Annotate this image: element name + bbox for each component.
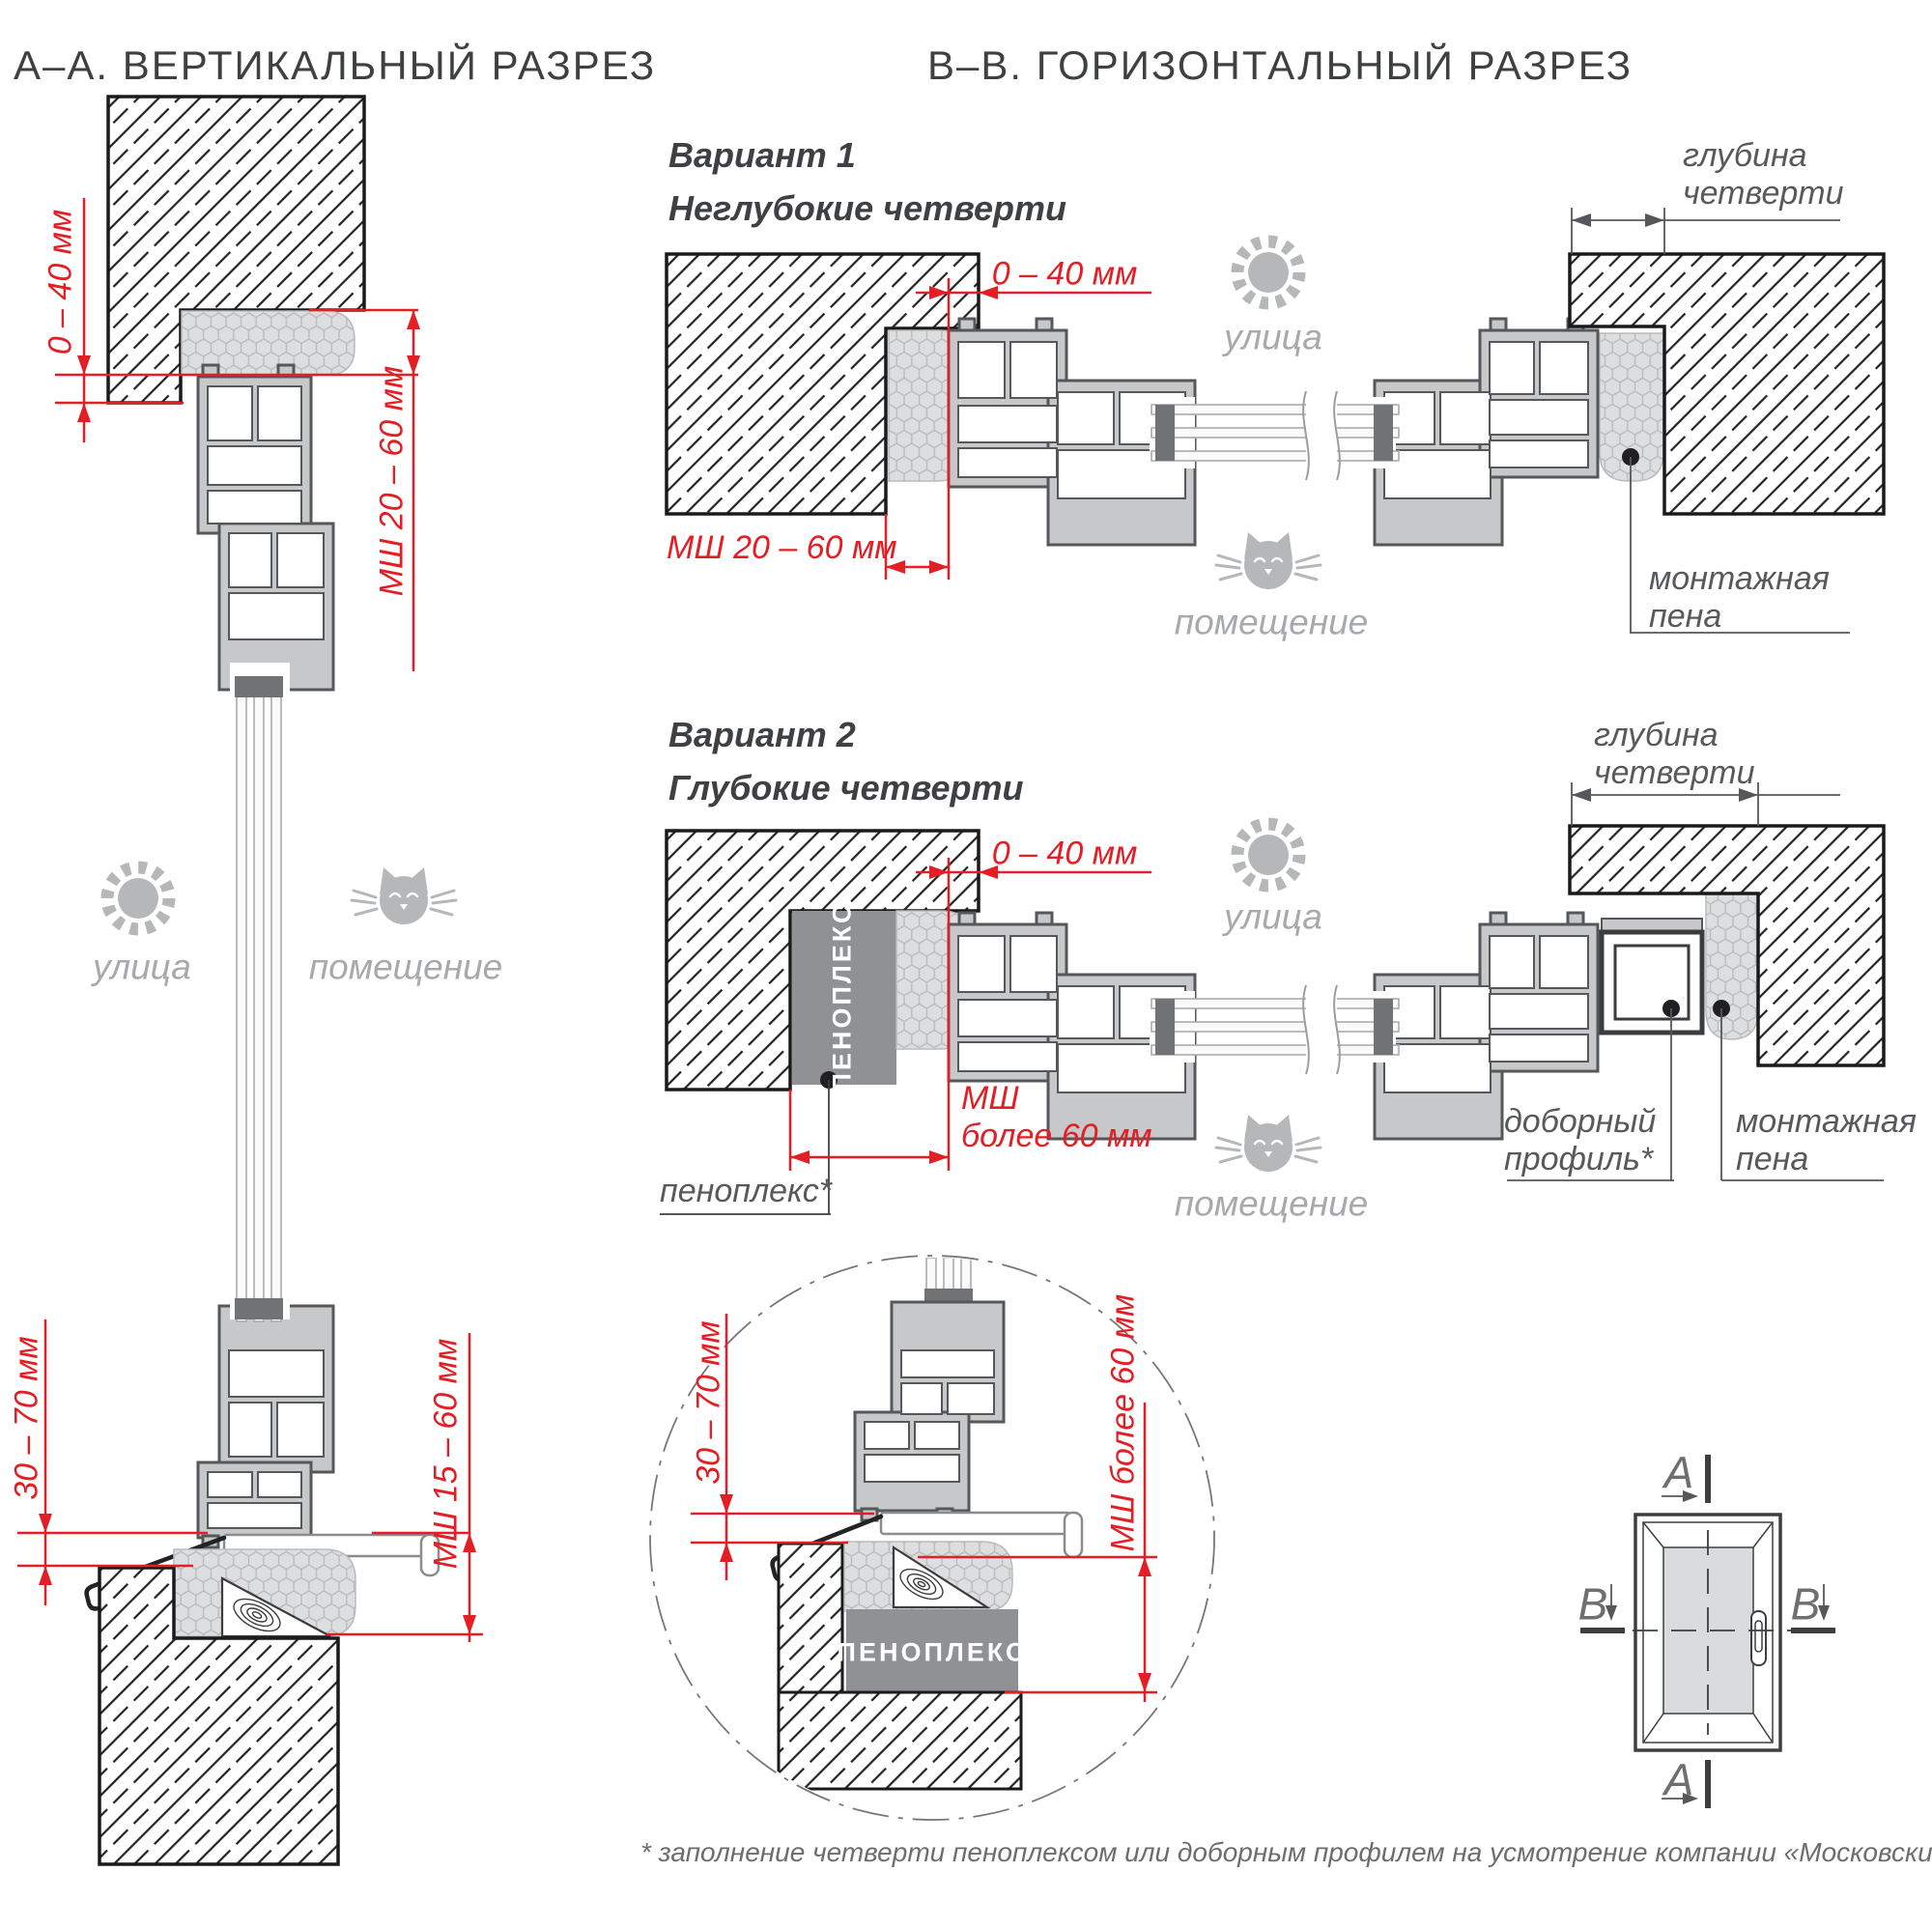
key-plan-mark-b-right: B [1791, 1579, 1821, 1630]
dim-label-bottom-seam: МШ 15 – 60 мм [427, 1339, 465, 1570]
key-plan-mark-a-bottom: A [1664, 1755, 1694, 1806]
detail-penoplex-label: ПЕНОПЛЕКС [838, 1637, 1028, 1667]
street-label: улица [1224, 318, 1322, 359]
quarter-depth-dim [1572, 208, 1840, 254]
cat-icon [352, 867, 456, 924]
detail-dim-offset: 30 – 70 мм [690, 1320, 727, 1485]
variant1-quarter-depth-label: глубина четверти [1683, 137, 1844, 213]
room-label: помещение [1175, 1184, 1368, 1226]
key-plan-mark-b-left: B [1578, 1579, 1608, 1630]
wall-bottom [779, 1692, 1021, 1789]
triple-glazing [237, 678, 281, 1321]
dim-label-bottom-offset: 30 – 70 мм [8, 1336, 45, 1500]
extension-profile [1602, 919, 1702, 1033]
variant1-title: Вариант 1 [668, 135, 856, 175]
section-b-title: B–B. ГОРИЗОНТАЛЬНЫЙ РАЗРЕЗ [927, 43, 1633, 89]
detail-dim-seam: МШ более 60 мм [1104, 1294, 1142, 1552]
variant1-subtitle: Неглубокие четверти [668, 188, 1066, 228]
section-a-title: А–А. ВЕРТИКАЛЬНЫЙ РАЗРЕЗ [14, 43, 656, 89]
room-label: помещение [309, 948, 502, 989]
extension-profile-label: доборный профиль* [1504, 1103, 1656, 1178]
variant1-dim-offset: 0 – 40 мм [992, 255, 1138, 293]
key-plan [1580, 1455, 1835, 1808]
footnote: * заполнение четверти пеноплексом или до… [640, 1837, 1932, 1868]
variant2-subtitle: Глубокие четверти [668, 768, 1024, 808]
variant2-dim-seam: МШ более 60 мм [961, 1080, 1152, 1155]
handle-icon [1751, 1611, 1766, 1665]
cat-icon [1216, 1115, 1321, 1172]
key-plan-mark-a-top: A [1664, 1448, 1694, 1499]
street-label: улица [93, 948, 191, 989]
variant2-dim-offset: 0 – 40 мм [992, 835, 1138, 872]
page: А–А. ВЕРТИКАЛЬНЫЙ РАЗРЕЗ B–B. ГОРИЗОНТАЛ… [0, 0, 1932, 1928]
room-label: помещение [1175, 603, 1368, 644]
penoplex-note-label: пеноплекс* [660, 1173, 832, 1210]
sun-icon [1237, 824, 1299, 886]
street-label: улица [1224, 897, 1322, 939]
sun-icon [107, 867, 169, 929]
dim-label-top-seam: МШ 20 – 60 мм [373, 366, 411, 597]
foam-seam-right [1706, 893, 1758, 1039]
dim-label-top-offset: 0 – 40 мм [42, 210, 79, 355]
variant2-mounting-foam-label: монтажная пена [1736, 1103, 1917, 1178]
variant1-dim-seam: МШ 20 – 60 мм [667, 529, 897, 567]
variant2-quarter-depth-label: глубина четверти [1594, 717, 1755, 792]
sun-icon [1237, 241, 1299, 303]
penoplex-block-label: ПЕНОПЛЕКС [827, 902, 857, 1092]
cat-icon [1216, 532, 1321, 589]
variant2-title: Вариант 2 [668, 715, 856, 754]
variant1-mounting-foam-label: монтажная пена [1649, 560, 1830, 636]
